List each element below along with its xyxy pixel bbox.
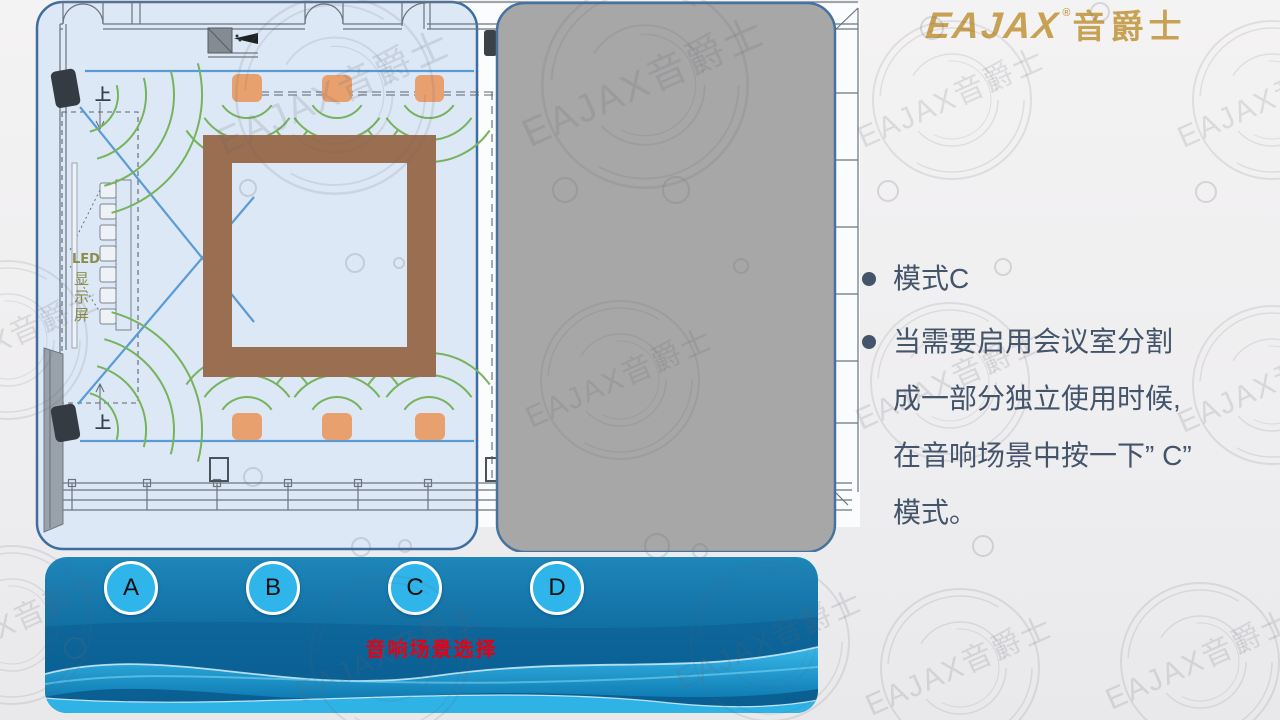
- scene-button-a[interactable]: A: [104, 561, 158, 615]
- bullet-list: 模式C 当需要启用会议室分割 成一部分独立使用时候, 在音响场景中按一下” C”…: [862, 250, 1278, 541]
- scene-button-c[interactable]: C: [388, 561, 442, 615]
- bullet-line: 在音响场景中按一下” C”: [893, 427, 1192, 484]
- floor-plan: 上 上 LED 显 示 屏: [35, 0, 862, 552]
- svg-text:示: 示: [74, 288, 89, 306]
- bullet-item-mode: 模式C: [862, 250, 1278, 307]
- scene-button-b[interactable]: B: [246, 561, 300, 615]
- bullet-line: 成一部分独立使用时候,: [893, 370, 1192, 427]
- svg-text:LED: LED: [72, 252, 100, 267]
- up-label-bottom: 上: [95, 413, 111, 432]
- svg-text:屏: 屏: [74, 306, 89, 324]
- svg-text:显: 显: [74, 270, 89, 288]
- brand-logo: EAJAX ® 音爵士: [926, 6, 1187, 48]
- scene-button-d[interactable]: D: [530, 561, 584, 615]
- up-label-top: 上: [95, 85, 111, 104]
- bullet-text: 模式C: [893, 250, 969, 307]
- bullet-line: 当需要启用会议室分割: [893, 313, 1192, 370]
- brand-logo-text: EAJAX: [924, 6, 1062, 46]
- brand-logo-cn: 音爵士: [1073, 6, 1187, 48]
- bullet-text: 当需要启用会议室分割 成一部分独立使用时候, 在音响场景中按一下” C” 模式。: [893, 313, 1192, 541]
- bullet-line: 模式。: [893, 484, 1192, 541]
- slide-background: 上 上 LED 显 示 屏 EAJAX ® 音爵士 模式C 当需要启用会议室分割…: [0, 0, 1280, 720]
- registered-trademark-icon: ®: [1062, 6, 1070, 20]
- scene-panel-title: 音响场景选择: [45, 633, 818, 662]
- bullet-icon: [862, 272, 876, 286]
- bullet-item-description: 当需要启用会议室分割 成一部分独立使用时候, 在音响场景中按一下” C” 模式。: [862, 313, 1278, 541]
- bullet-icon: [862, 335, 876, 349]
- partition-overlay: [497, 3, 835, 552]
- scene-selection-panel: A B C D 音响场景选择: [45, 557, 818, 713]
- column-speaker-right: [484, 30, 497, 56]
